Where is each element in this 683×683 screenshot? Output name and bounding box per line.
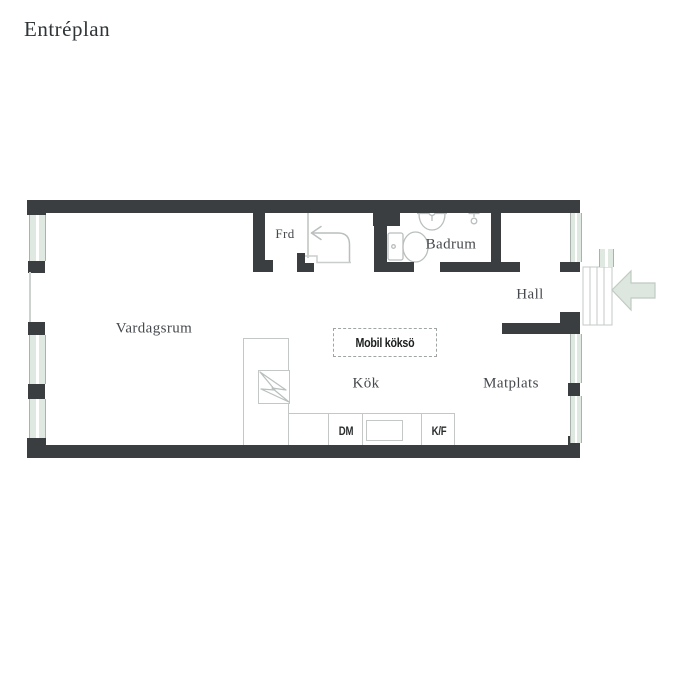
threshold-step	[304, 256, 351, 263]
wall-frd-foot	[253, 260, 273, 272]
wall-top	[30, 200, 580, 213]
room-label-matplats: Matplats	[483, 376, 539, 393]
wall-frd	[253, 213, 265, 262]
wall-left-thin	[29, 272, 31, 322]
window	[570, 334, 582, 383]
mobile-island-box: Mobil köksö	[333, 328, 437, 357]
porch-window	[599, 249, 614, 267]
window	[29, 335, 46, 384]
window	[29, 215, 46, 261]
room-label-badrum: Badrum	[426, 237, 477, 254]
wall-left-corner-bottom	[27, 438, 46, 458]
wall-entry-jamb	[560, 312, 580, 323]
wall-left-pier	[28, 322, 45, 335]
wall-bathroom-right	[491, 213, 501, 262]
entry-steps	[583, 267, 612, 325]
room-label-kok: Kök	[352, 376, 379, 393]
mobile-island-label: Mobil köksö	[356, 335, 415, 350]
room-label-hall: Hall	[516, 287, 543, 304]
window	[29, 399, 46, 438]
wall-bottom	[30, 445, 580, 458]
room-label-vardagsrum: Vardagsrum	[116, 321, 192, 338]
wall-stub-horiz	[297, 263, 314, 272]
dishwasher-label: DM	[339, 424, 353, 438]
stove-icon	[260, 372, 289, 402]
toilet-icon	[388, 232, 428, 262]
fridge-freezer-label: K/F	[432, 424, 447, 438]
entrance-arrow-icon	[612, 271, 655, 310]
wall-hall-lower	[502, 323, 580, 334]
wall-left-pier	[28, 384, 45, 399]
floorplan-canvas: Entréplan	[0, 0, 683, 683]
room-label-frd: Frd	[275, 226, 294, 242]
window	[570, 396, 582, 443]
wall-frd-thin	[307, 213, 309, 258]
wall-bathroom-bottom-left	[386, 262, 414, 272]
wall-hall-stub	[560, 262, 580, 272]
wall-left-corner-top	[27, 200, 46, 215]
window	[570, 213, 582, 262]
wall-bathroom-top	[373, 200, 400, 226]
wall-right-pier	[568, 383, 580, 396]
wall-bathroom-bottom-right	[440, 262, 520, 272]
